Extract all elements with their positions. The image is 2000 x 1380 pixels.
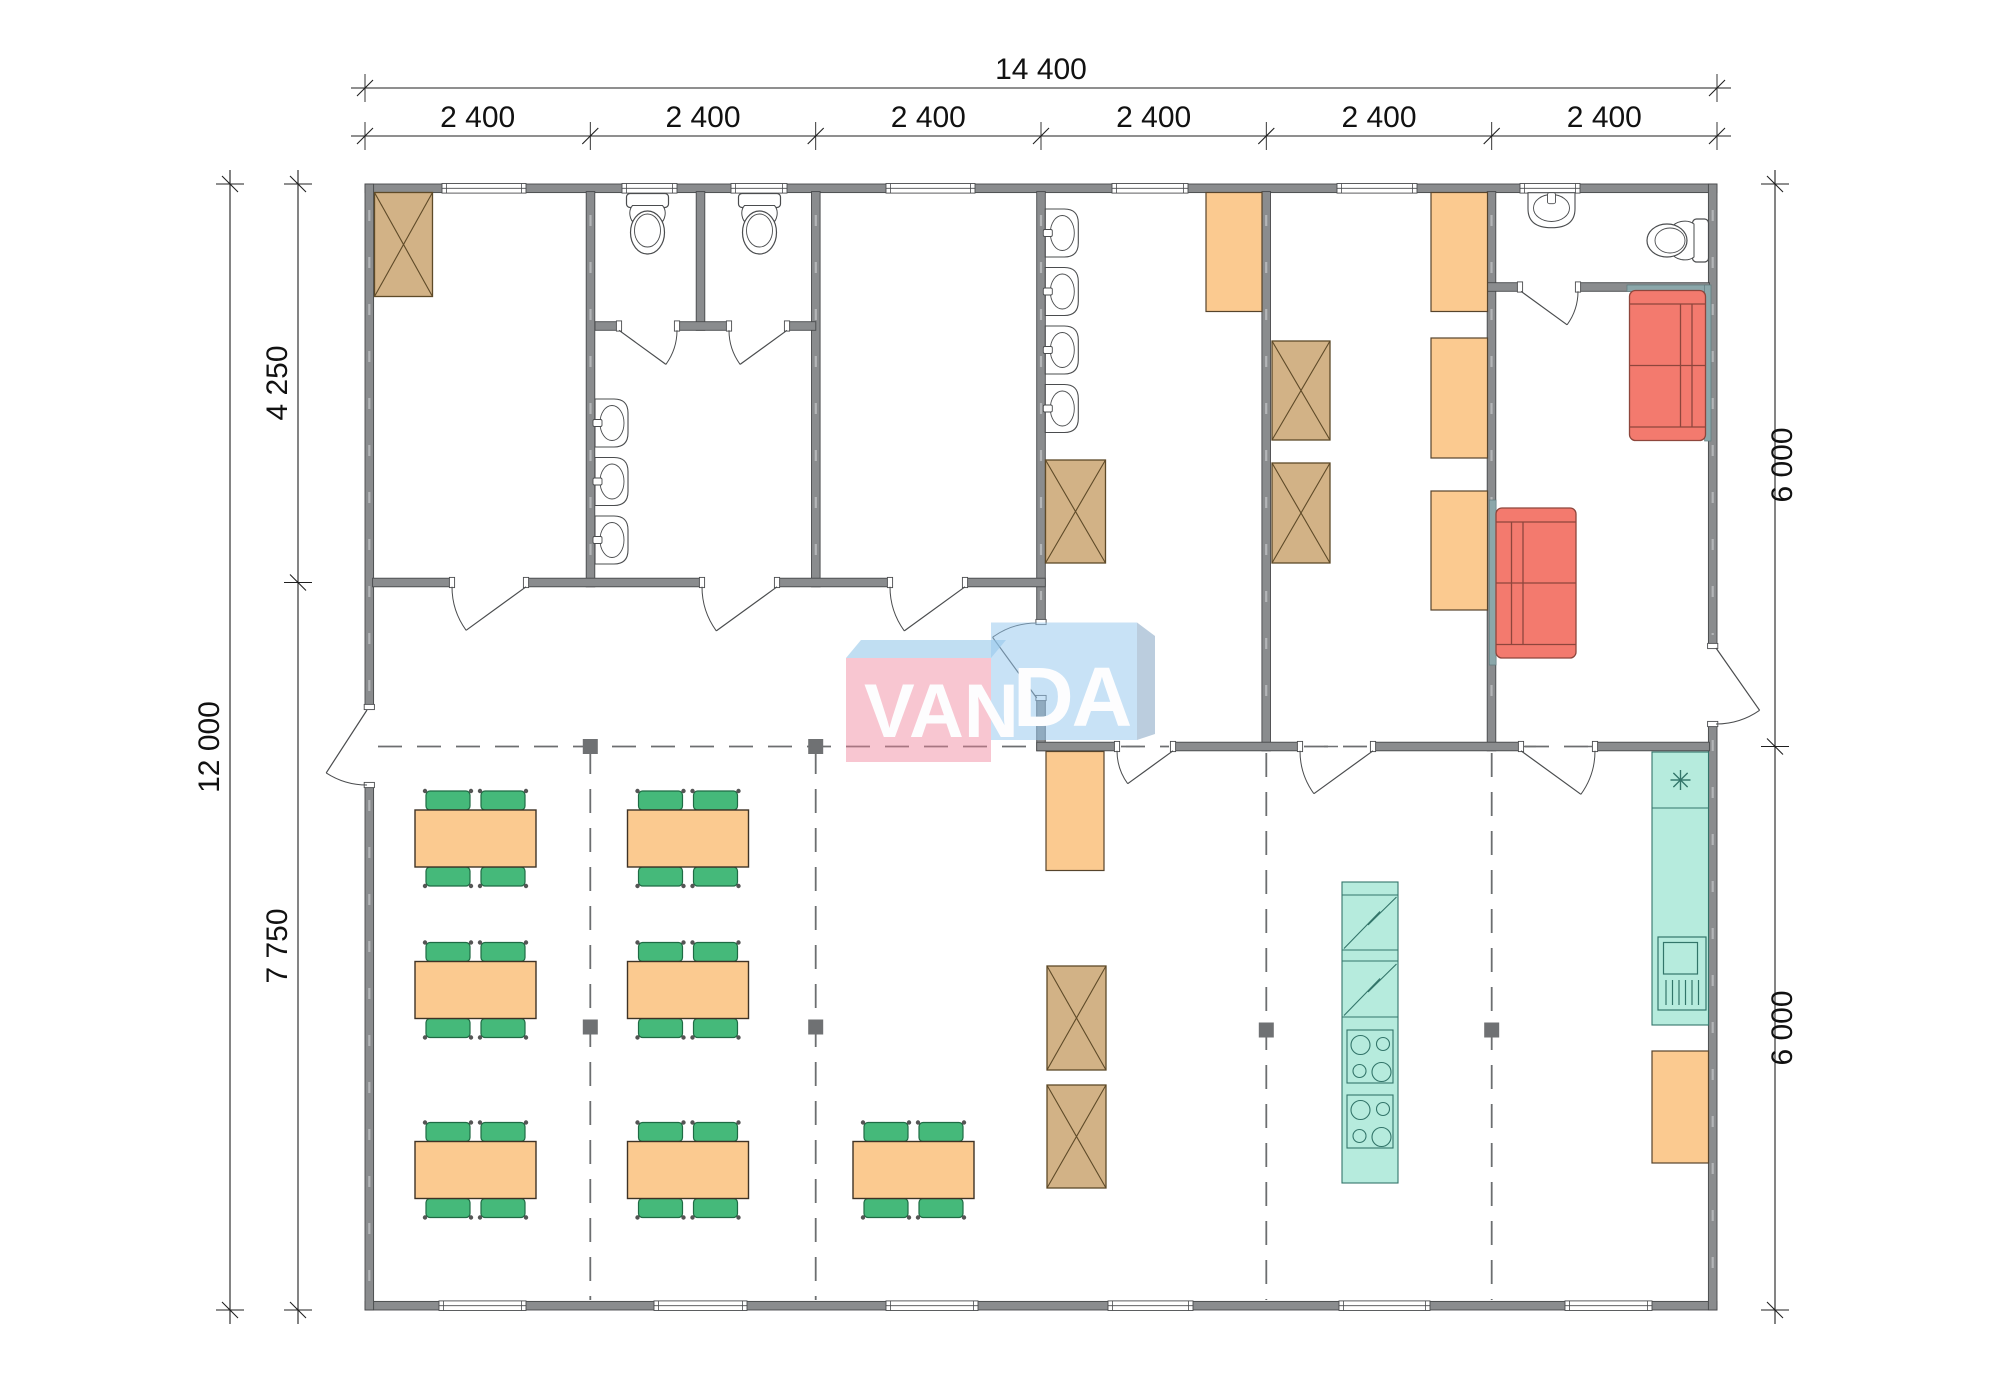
- svg-text:6 000: 6 000: [1766, 427, 1799, 502]
- svg-text:12 000: 12 000: [193, 701, 226, 793]
- svg-text:2 400: 2 400: [1116, 101, 1191, 134]
- svg-text:2 400: 2 400: [1567, 101, 1642, 134]
- svg-text:4 250: 4 250: [261, 345, 294, 420]
- svg-text:7 750: 7 750: [261, 908, 294, 983]
- svg-text:2 400: 2 400: [440, 101, 515, 134]
- svg-text:14 400: 14 400: [995, 53, 1087, 86]
- svg-text:VAN: VAN: [864, 669, 1019, 754]
- svg-text:2 400: 2 400: [1341, 101, 1416, 134]
- svg-text:DA: DA: [1013, 650, 1131, 744]
- svg-text:2 400: 2 400: [891, 101, 966, 134]
- svg-text:2 400: 2 400: [665, 101, 740, 134]
- svg-text:6 000: 6 000: [1766, 990, 1799, 1065]
